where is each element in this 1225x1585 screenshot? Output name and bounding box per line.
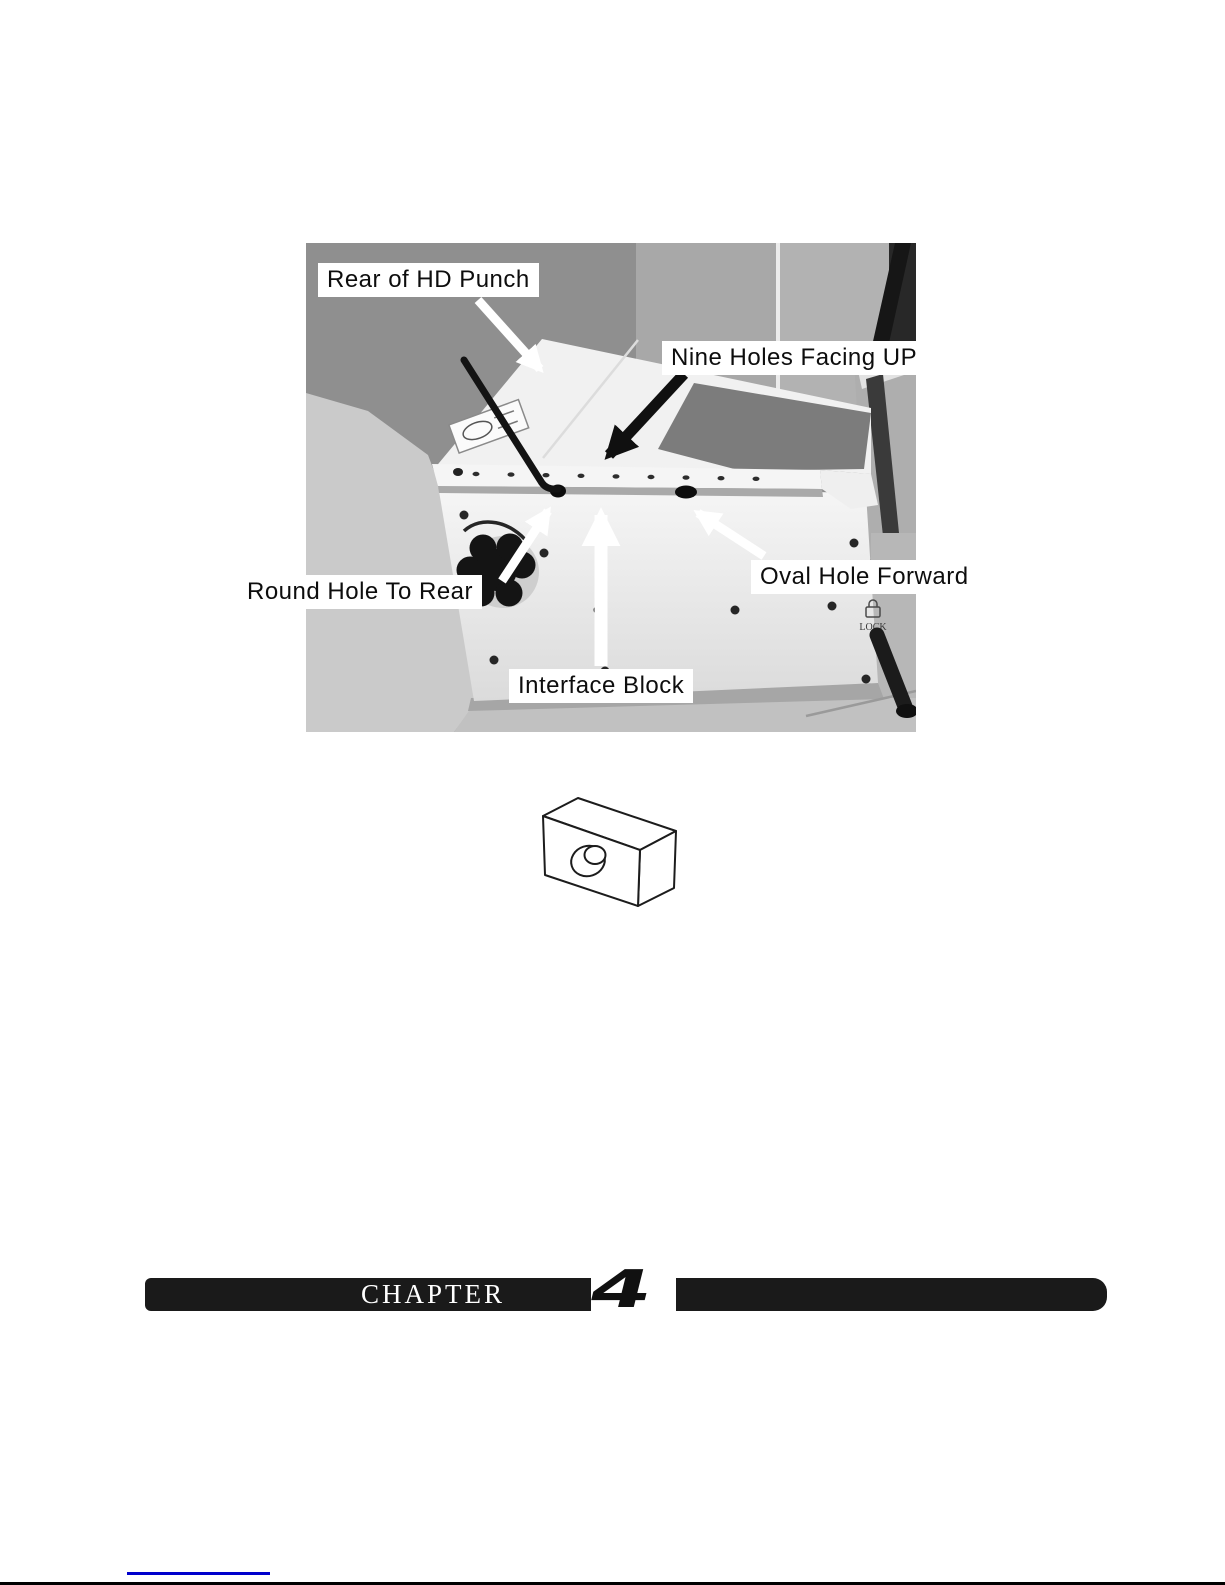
chapter-label: CHAPTER [361,1278,505,1311]
chapter-bar: CHAPTER 4 [145,1278,1107,1311]
punch-photo: LOCK [306,243,916,732]
callout-nine-holes-facing-up: Nine Holes Facing UP [662,341,926,375]
manual-page: LOCK Rear of HD Punch Nine Holes Facing … [0,0,1225,1585]
block-hole-inner [585,846,606,864]
callout-round-hole-to-rear: Round Hole To Rear [238,575,482,609]
oval-hole [675,486,697,499]
chapter-number: 4 [584,1269,656,1312]
interface-block-drawing [538,793,688,915]
punch-photo-figure: LOCK Rear of HD Punch Nine Holes Facing … [306,243,916,732]
callout-rear-of-hd-punch: Rear of HD Punch [318,263,539,297]
footer-link-underline[interactable] [127,1572,270,1575]
callout-interface-block: Interface Block [509,669,693,703]
callout-oval-hole-forward: Oval Hole Forward [751,560,978,594]
